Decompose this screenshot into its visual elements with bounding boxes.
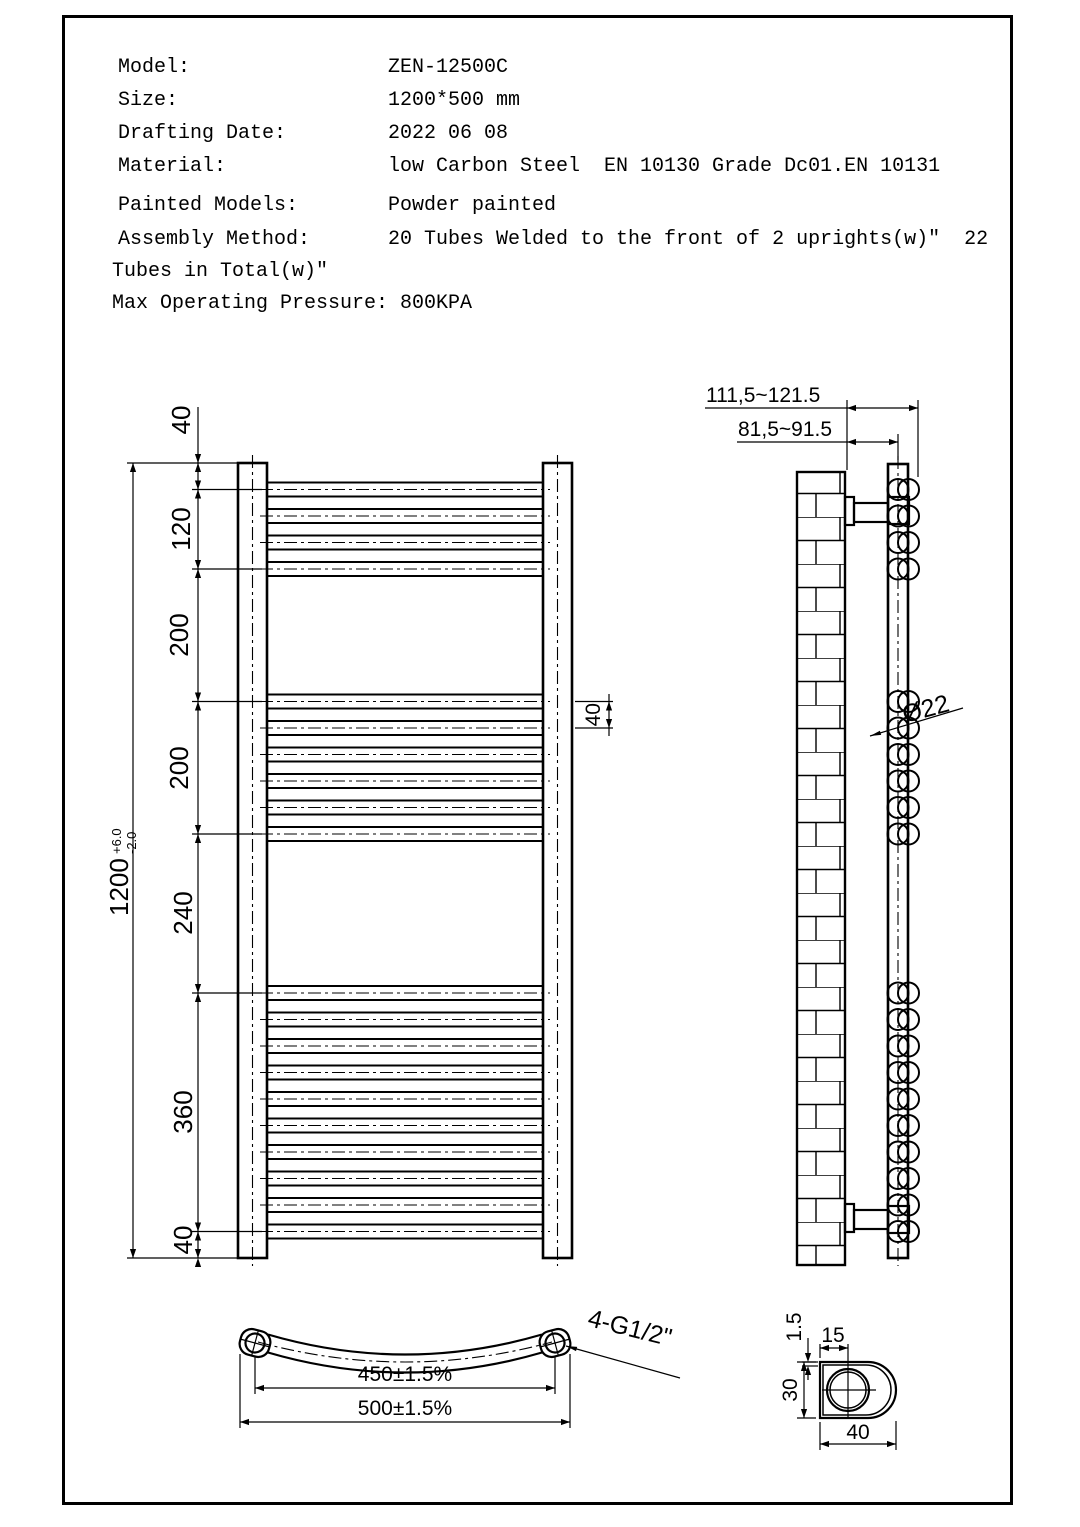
dim-wall-thickness: 1.5	[783, 1312, 806, 1341]
side-tube-ends	[888, 479, 920, 1242]
dim-wall-to-center: 81,5~91.5	[738, 418, 832, 441]
bottom-view-dimensions: 450±1.5% 500±1.5% 4-G1/2"	[240, 1304, 680, 1428]
right-end-fitting	[537, 1326, 573, 1361]
dim-group2: 200	[164, 746, 194, 789]
overall-height-label: 1200 +6.0 -2.0	[104, 828, 139, 916]
tube-top-arc	[268, 1335, 542, 1355]
detail-view-dimensions: 15 30 40 1.5	[779, 1312, 896, 1450]
front-view	[238, 455, 572, 1266]
cad-drawing: 40 120 200 200 240 360 40 1200 +6.0 -2.0…	[0, 0, 1080, 1527]
drawing-sheet: Model:ZEN-12500C Size:1200*500 mm Drafti…	[0, 0, 1080, 1527]
dim-profile-width: 30	[779, 1378, 802, 1401]
dim-gap1: 200	[164, 613, 194, 656]
tube-center-arc	[258, 1342, 552, 1362]
dim-overall-width: 500±1.5%	[358, 1397, 452, 1420]
wall-section	[797, 472, 845, 1265]
dim-group1: 120	[166, 507, 196, 550]
dim-bottom-gap: 40	[168, 1226, 198, 1255]
tolerance-minus: -2.0	[124, 832, 139, 854]
thread-spec-label: 4-G1/2"	[585, 1304, 675, 1352]
dim-profile-depth: 40	[846, 1421, 869, 1444]
tolerance-plus: +6.0	[109, 828, 124, 854]
dim-wall-to-front: 111,5~121.5	[706, 384, 820, 407]
dim-hole-offset: 15	[821, 1324, 844, 1347]
dim-group3: 360	[168, 1090, 198, 1133]
overall-height-value: 1200	[104, 858, 134, 916]
detail-view	[820, 1344, 896, 1418]
dim-center-distance: 450±1.5%	[358, 1363, 452, 1386]
tube-pitch-label: 40	[582, 703, 605, 726]
dim-gap2: 240	[168, 891, 198, 934]
left-end-fitting	[237, 1326, 273, 1361]
side-view	[797, 456, 919, 1266]
front-tubes	[260, 483, 550, 1239]
dim-top-gap: 40	[166, 406, 196, 435]
